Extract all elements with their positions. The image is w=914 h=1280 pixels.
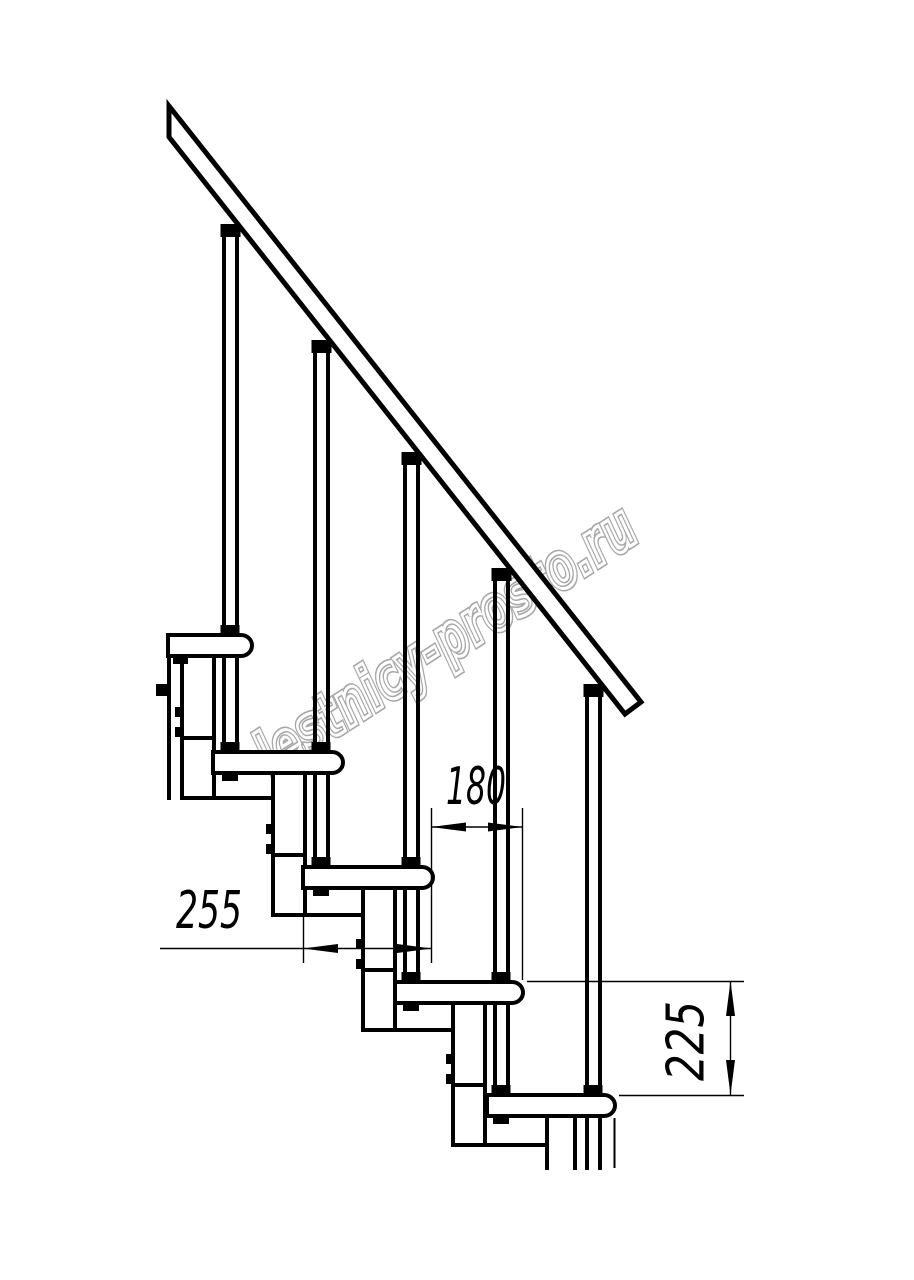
column-2-bracket-tab — [266, 844, 274, 854]
column-3 — [363, 883, 395, 1030]
tread-1-bolt-tab — [173, 657, 188, 664]
column-4-bracket-tab — [446, 1054, 454, 1064]
dimension-rise-value: 225 — [657, 1001, 717, 1081]
baluster-3 — [402, 452, 422, 984]
tread-1 — [168, 635, 252, 656]
column-2-bracket-tab — [266, 824, 274, 834]
dimension-run-value: 180 — [446, 757, 506, 817]
dimension-rise-arrow-down — [726, 1060, 735, 1095]
baluster-5-tread-cap — [584, 1085, 603, 1096]
tread-4 — [395, 982, 523, 1003]
tread-3 — [303, 867, 433, 888]
baluster-2 — [312, 340, 332, 869]
staircase-technical-drawing: lestnicy-prosto.ru lestnicy-prosto.ru — [0, 0, 914, 1280]
dimension-run-arrow-left — [431, 823, 466, 832]
tread-3-bolt-tab — [313, 889, 329, 896]
dimension-tread-value: 255 — [176, 881, 242, 941]
dimension-run-arrow-right — [488, 823, 523, 832]
baluster-1-tread-cap — [221, 625, 240, 636]
column-1 — [182, 651, 214, 798]
dimension-tread-arrow-left — [303, 944, 338, 953]
tread-2-bolt-tab — [222, 774, 238, 781]
column-4-bracket-tab — [446, 1074, 454, 1084]
tread-5 — [487, 1095, 615, 1116]
strut-3-foot-cap — [402, 972, 421, 983]
dimension-rise-arrow-up — [726, 981, 735, 1016]
column-5 — [545, 1113, 577, 1170]
baluster-3-tread-cap — [402, 857, 421, 868]
column-2 — [273, 768, 305, 915]
column-1-bracket-tab — [175, 727, 183, 737]
strut-4-foot-cap — [492, 1085, 511, 1096]
left-edge-bracket-tab — [156, 684, 168, 696]
tread-4-bolt-tab — [403, 1004, 419, 1011]
strut-2-foot-cap — [312, 857, 331, 868]
tread-5-bolt-tab — [493, 1117, 509, 1124]
strut-1-foot-cap — [221, 742, 240, 753]
tread-2 — [213, 752, 343, 773]
column-4 — [453, 998, 485, 1145]
baluster-2-tread-cap — [312, 742, 331, 753]
baluster-1 — [221, 224, 241, 754]
baluster-4-tread-cap — [492, 972, 511, 983]
dimension-tread-arrow-right — [397, 944, 432, 953]
column-1-bracket-tab — [175, 707, 183, 717]
column-3-bracket-tab — [356, 939, 364, 949]
column-3-bracket-tab — [356, 959, 364, 969]
